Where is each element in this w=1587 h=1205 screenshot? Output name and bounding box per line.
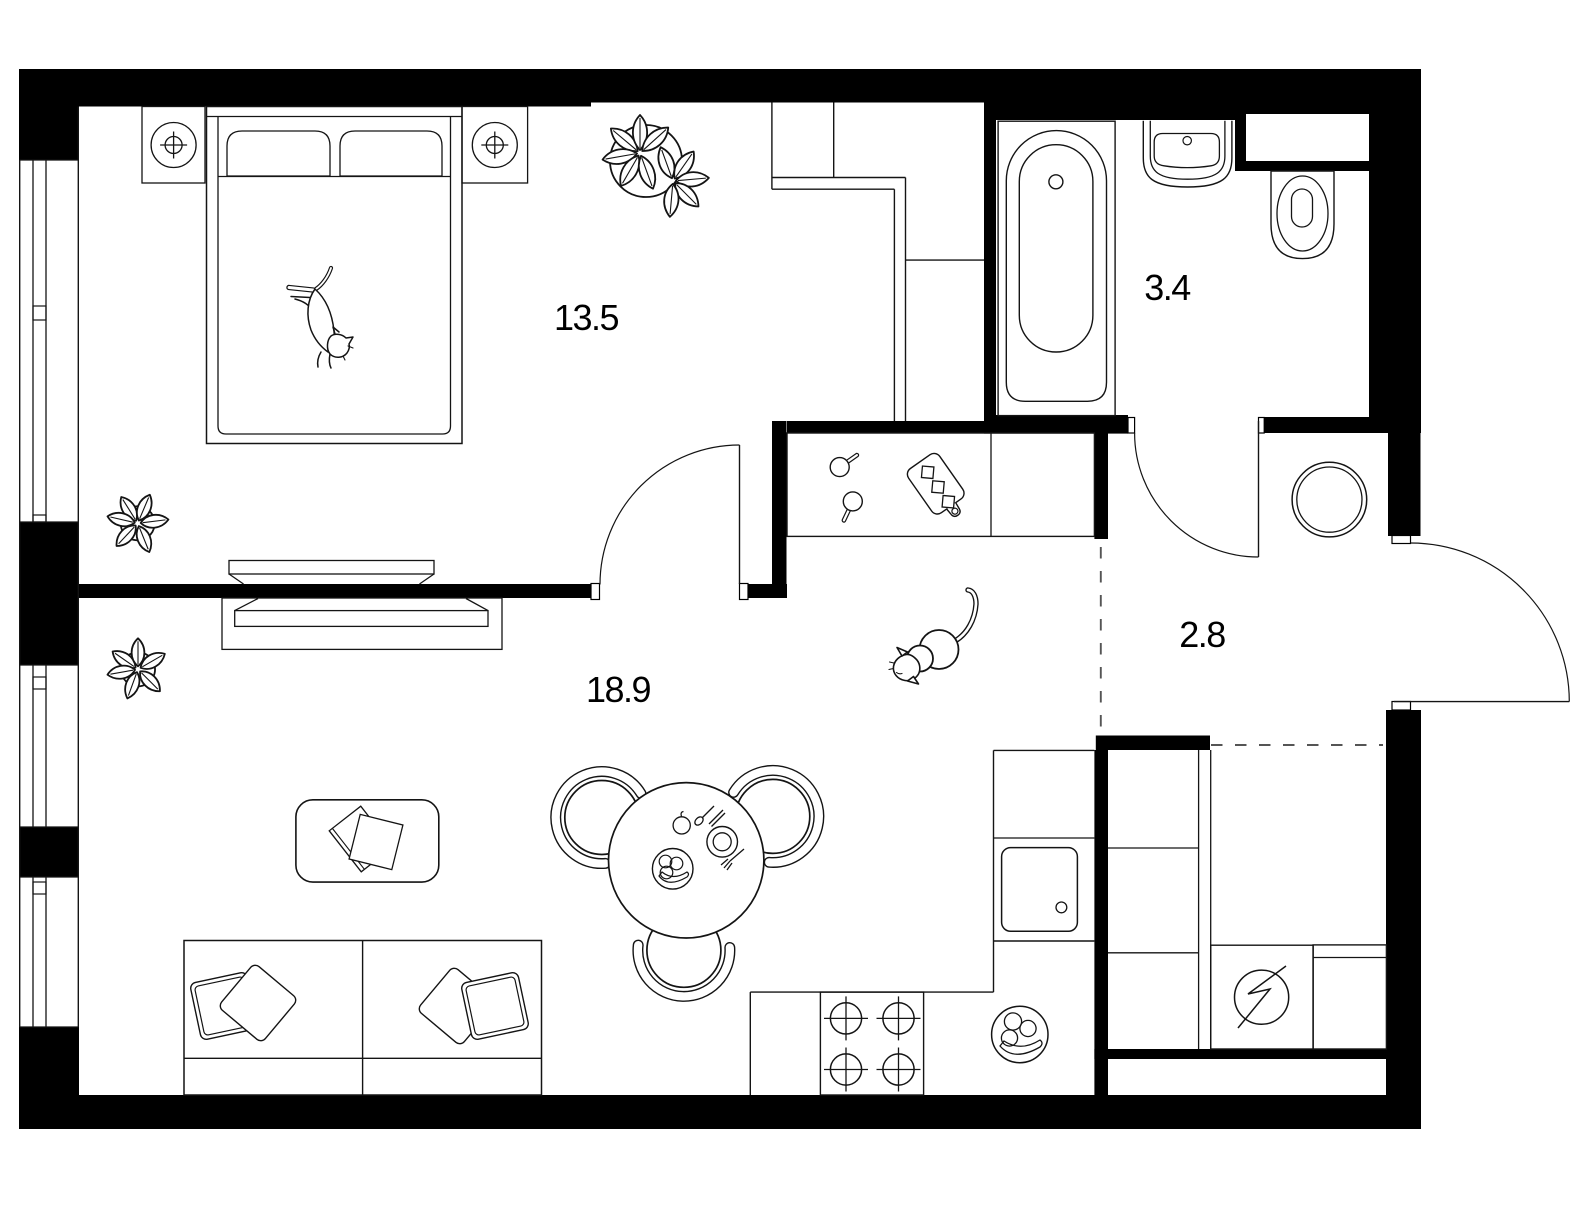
svg-text:3.4: 3.4 — [1144, 267, 1190, 308]
svg-text:18.9: 18.9 — [586, 669, 651, 710]
svg-text:13.5: 13.5 — [554, 297, 619, 338]
svg-text:2.8: 2.8 — [1179, 614, 1225, 655]
